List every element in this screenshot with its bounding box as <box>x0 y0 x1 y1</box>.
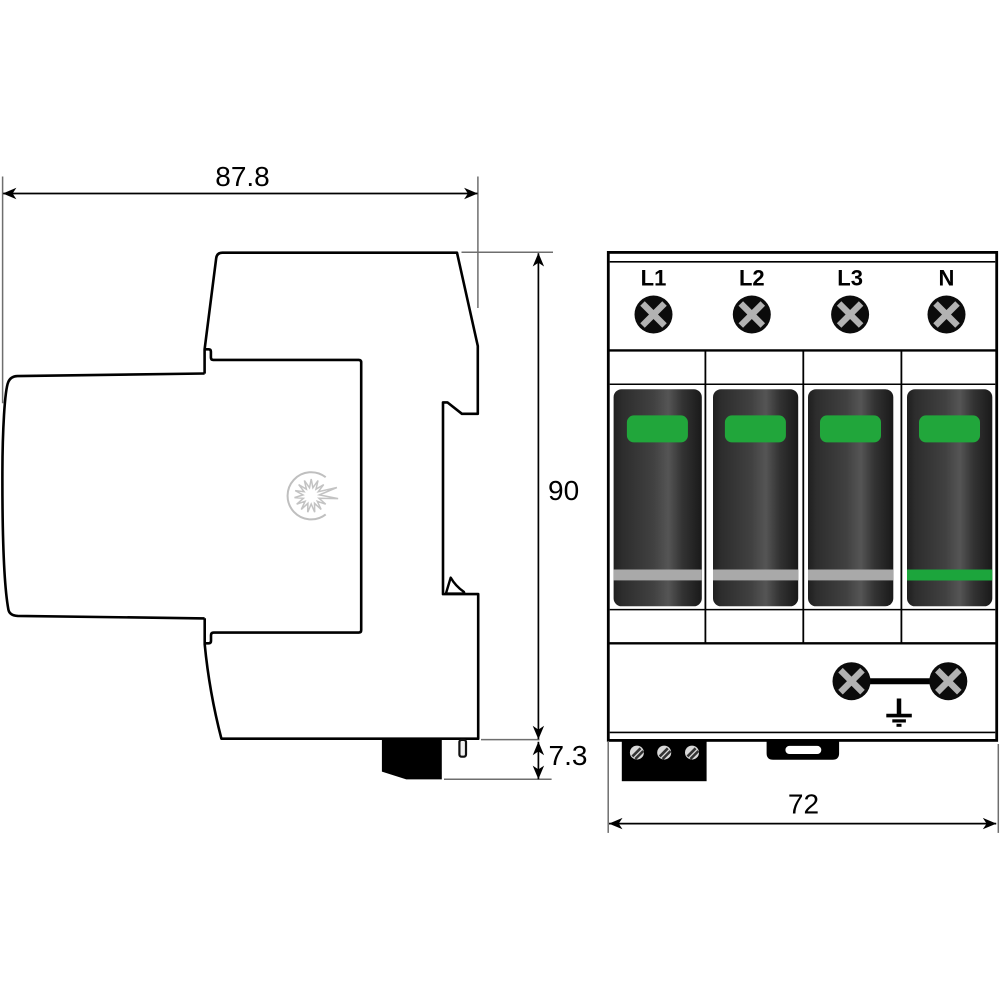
svg-text:L2: L2 <box>739 266 765 291</box>
svg-text:N: N <box>939 266 955 291</box>
svg-text:7.3: 7.3 <box>549 740 588 771</box>
svg-text:72: 72 <box>788 789 819 820</box>
svg-text:L3: L3 <box>837 266 863 291</box>
svg-text:90: 90 <box>548 475 579 506</box>
svg-text:87.8: 87.8 <box>215 161 270 192</box>
svg-text:L1: L1 <box>641 266 667 291</box>
